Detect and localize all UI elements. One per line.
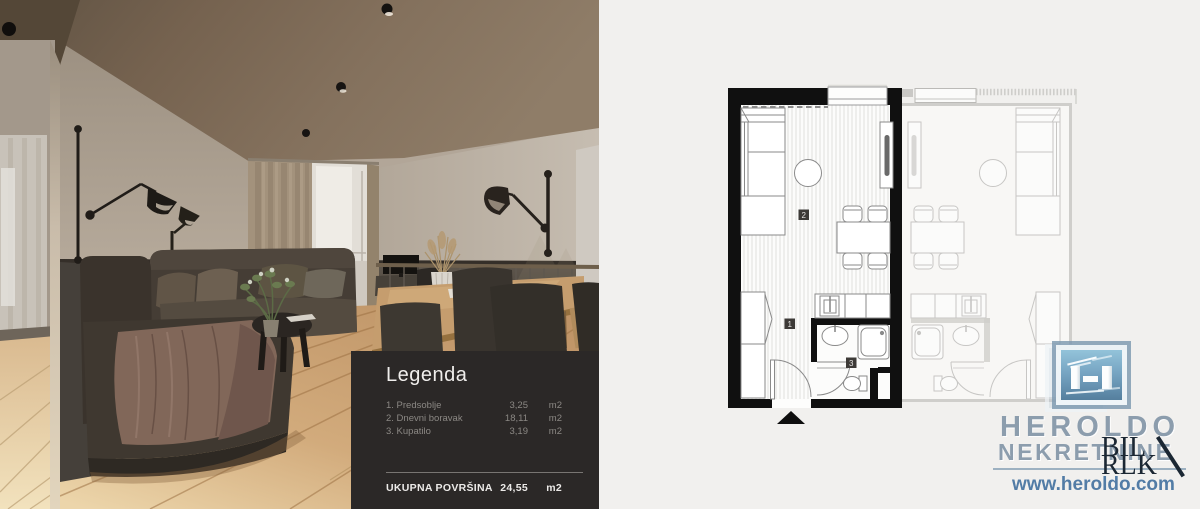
svg-text:3: 3 — [849, 359, 854, 368]
svg-text:2: 2 — [801, 211, 806, 220]
svg-text:1: 1 — [787, 320, 792, 329]
